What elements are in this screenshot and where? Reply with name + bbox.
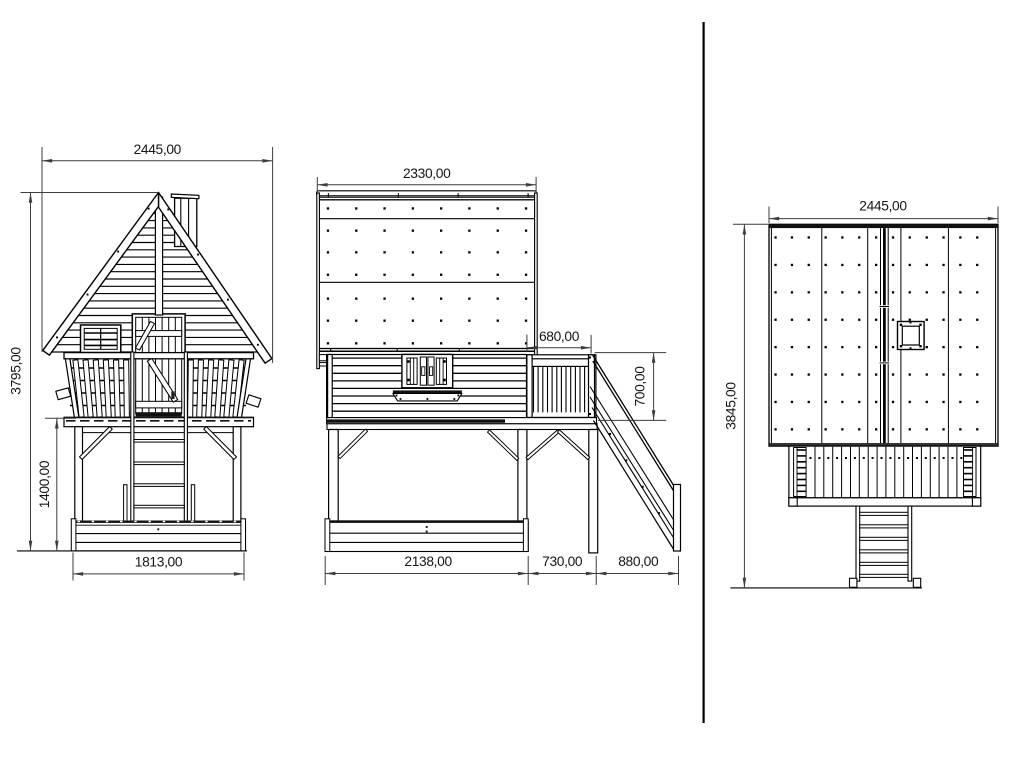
svg-text:3795,00: 3795,00 (9, 347, 24, 395)
svg-text:1400,00: 1400,00 (37, 460, 52, 508)
svg-text:880,00: 880,00 (618, 554, 659, 569)
svg-text:730,00: 730,00 (542, 554, 583, 569)
svg-text:1813,00: 1813,00 (135, 555, 183, 570)
svg-text:700,00: 700,00 (633, 366, 648, 407)
svg-text:2138,00: 2138,00 (404, 554, 452, 569)
svg-text:2330,00: 2330,00 (403, 166, 451, 181)
svg-text:680,00: 680,00 (539, 329, 580, 344)
svg-text:3845,00: 3845,00 (724, 382, 739, 430)
svg-text:2445,00: 2445,00 (859, 199, 907, 214)
svg-text:2445,00: 2445,00 (134, 142, 182, 157)
